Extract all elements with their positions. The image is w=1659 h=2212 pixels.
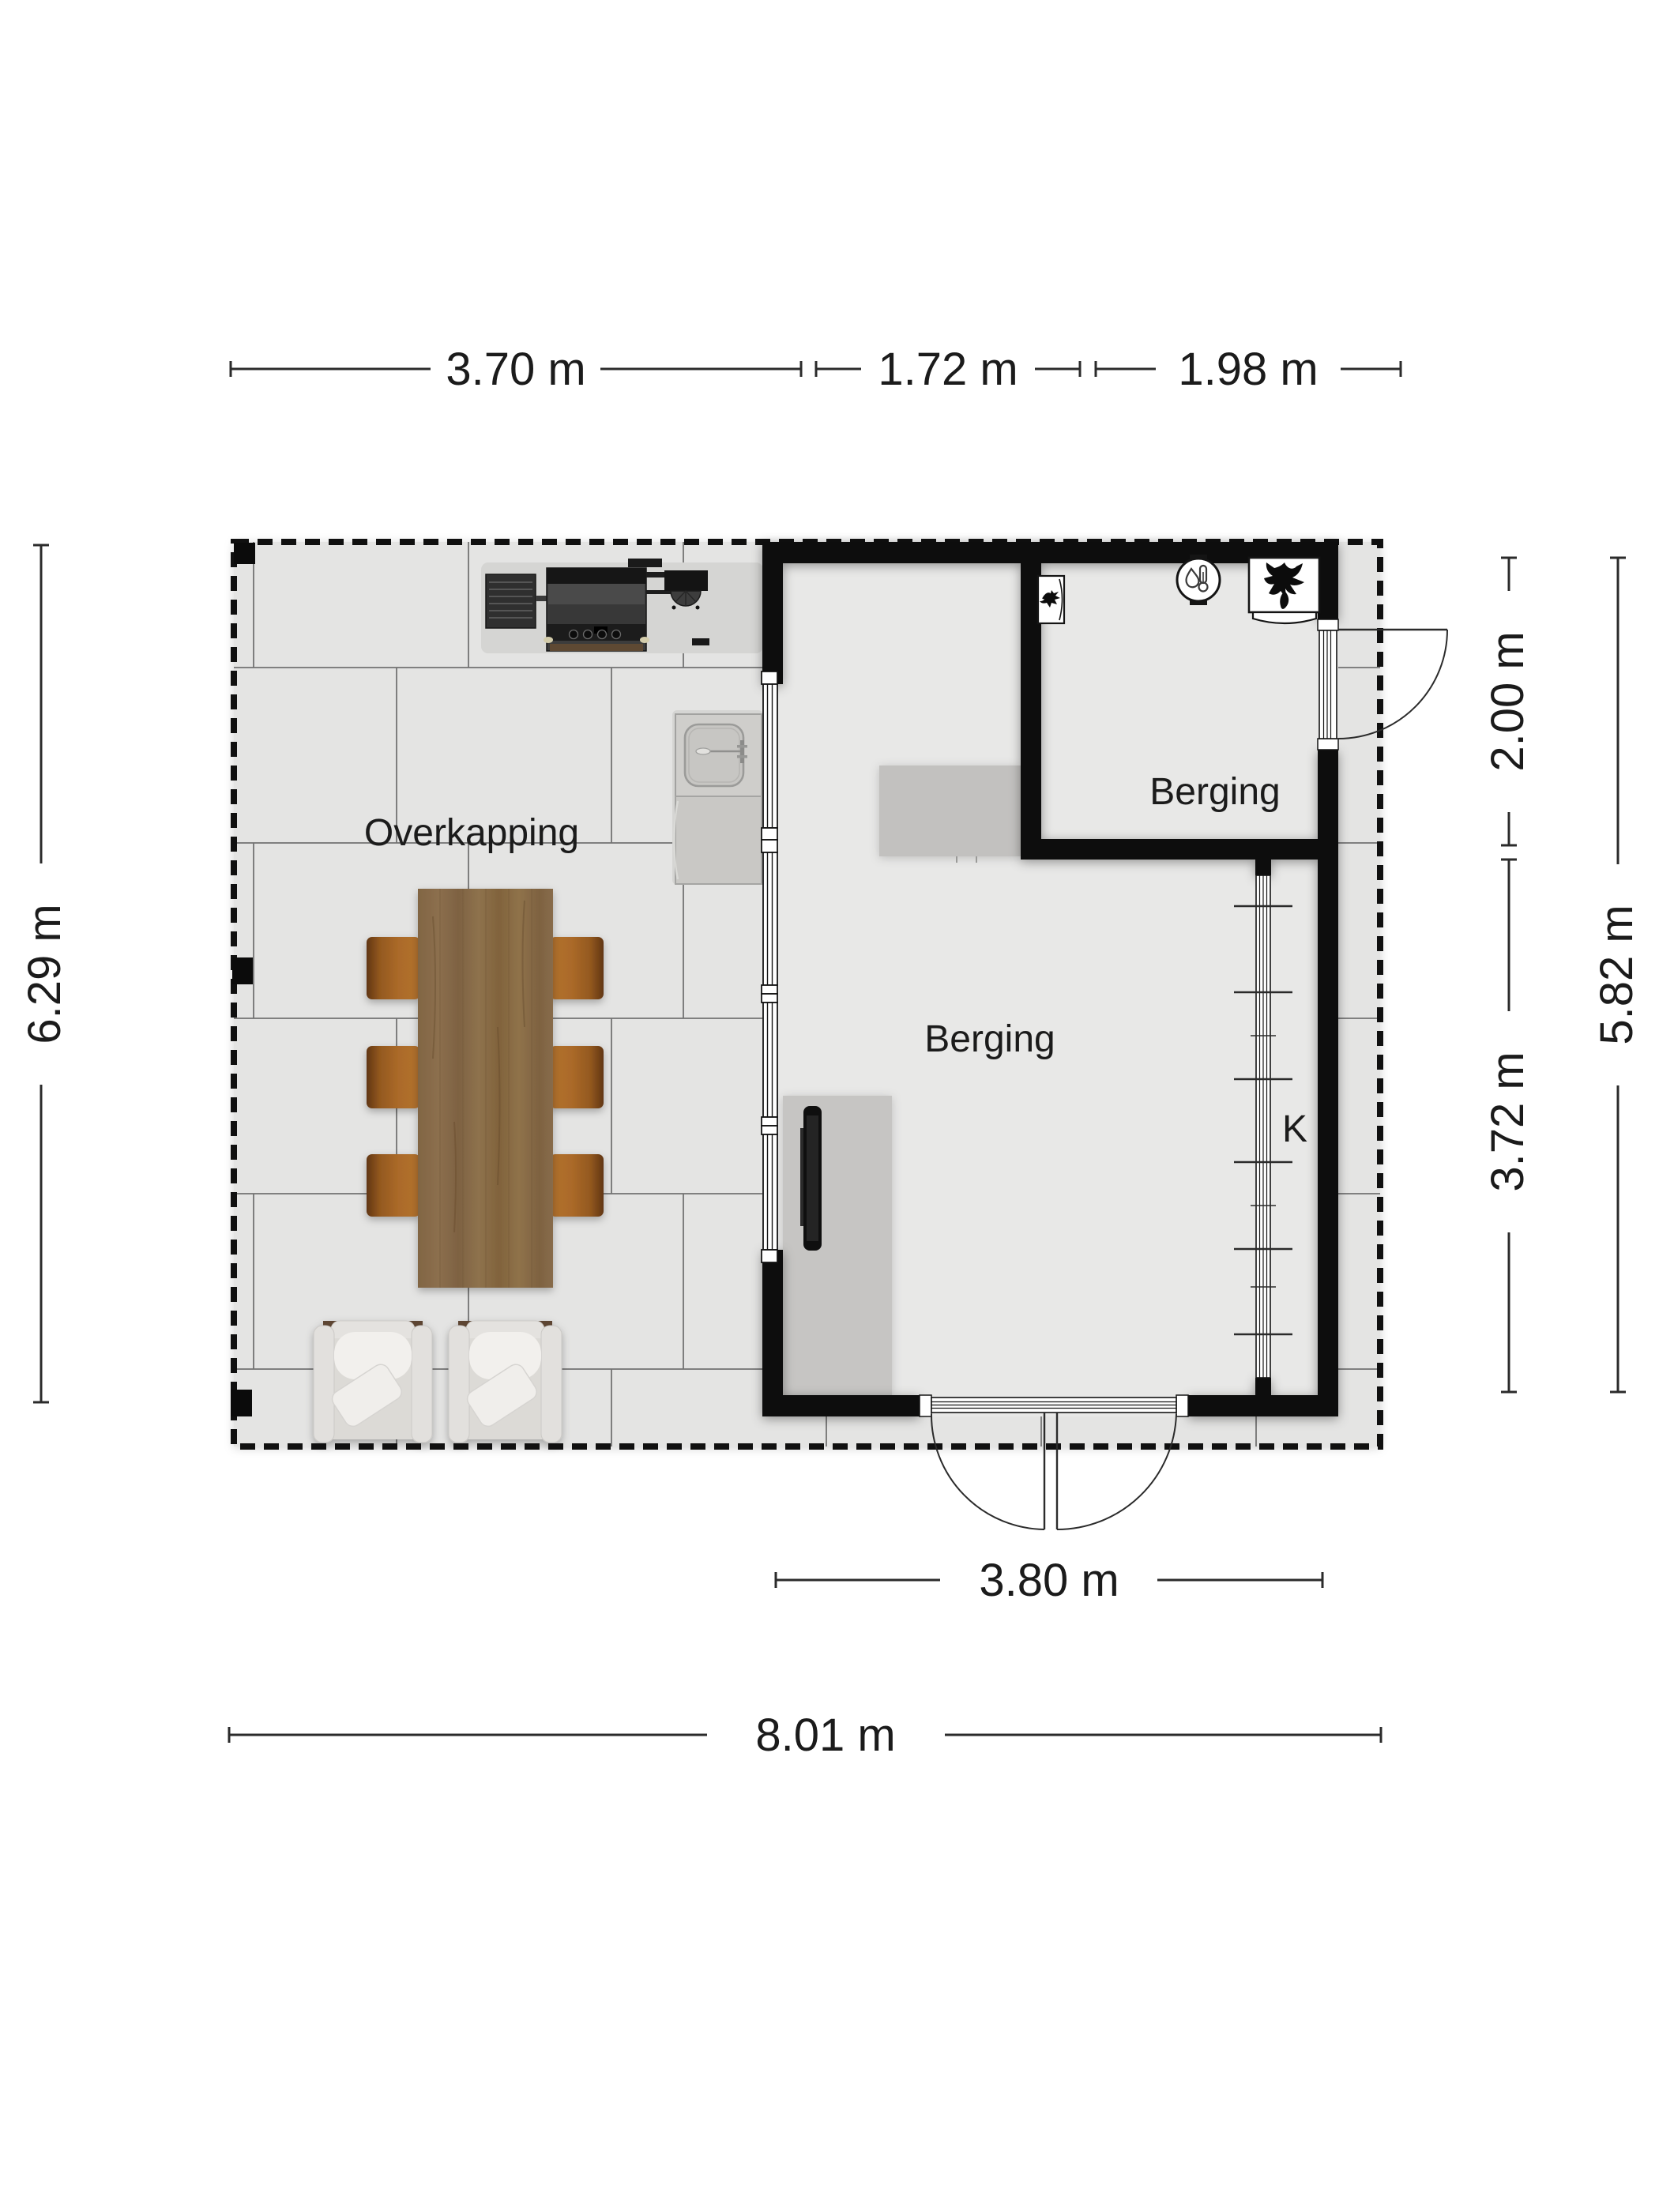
svg-text:Berging: Berging — [924, 1018, 1055, 1060]
svg-text:1.98 m: 1.98 m — [1178, 344, 1318, 395]
svg-text:3.80 m: 3.80 m — [979, 1555, 1119, 1606]
svg-text:Berging: Berging — [1149, 771, 1280, 813]
svg-text:3.70 m: 3.70 m — [446, 344, 585, 395]
svg-text:5.82 m: 5.82 m — [1591, 905, 1642, 1044]
svg-text:6.29 m: 6.29 m — [19, 904, 70, 1044]
svg-text:8.01 m: 8.01 m — [755, 1710, 895, 1761]
svg-text:2.00 m: 2.00 m — [1482, 631, 1533, 771]
svg-text:3.72 m: 3.72 m — [1482, 1051, 1533, 1191]
svg-text:K: K — [1282, 1108, 1307, 1150]
svg-text:1.72 m: 1.72 m — [878, 344, 1018, 395]
svg-text:Overkapping: Overkapping — [364, 812, 579, 854]
